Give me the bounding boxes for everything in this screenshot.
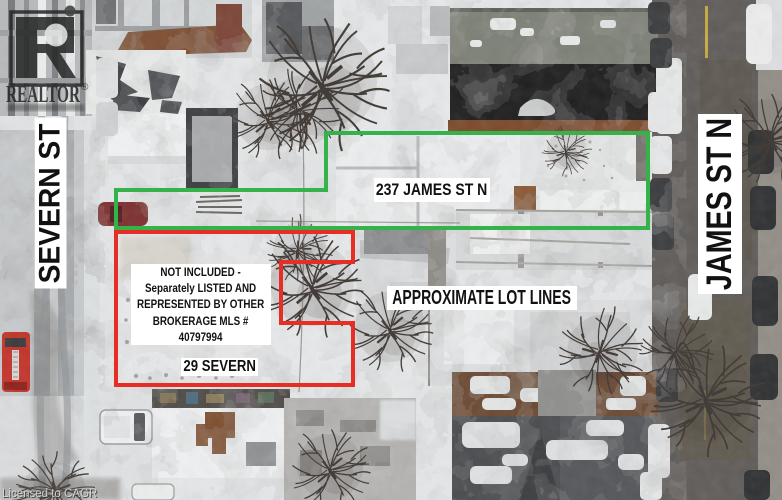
svg-text:Licensed to CAGR: Licensed to CAGR [2, 488, 97, 500]
svg-text:®: ® [81, 82, 89, 93]
